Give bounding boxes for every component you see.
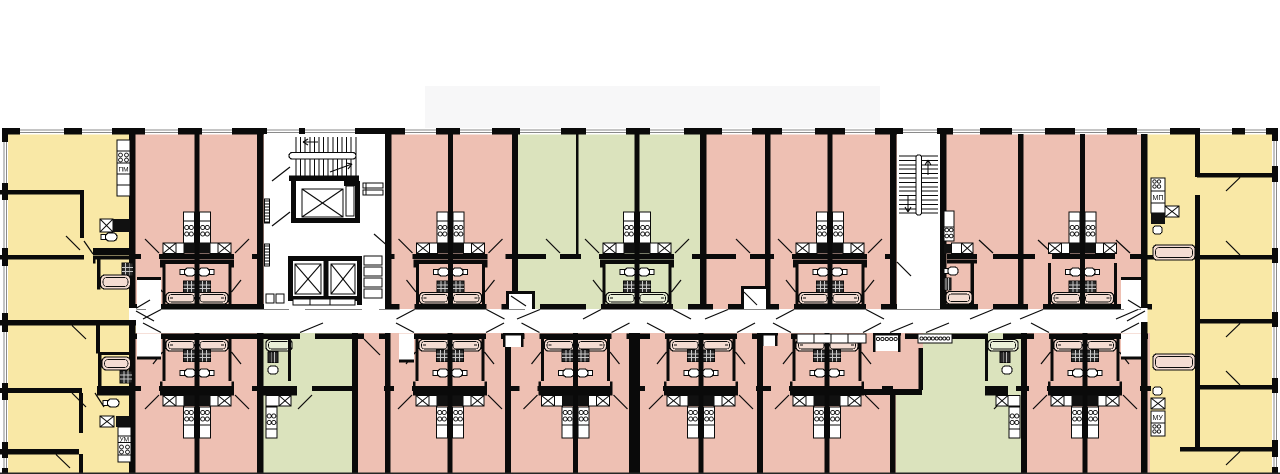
- svg-text:УМ: УМ: [120, 437, 130, 444]
- svg-text:МП: МП: [1153, 195, 1164, 202]
- svg-text:МУ: МУ: [1153, 415, 1164, 422]
- svg-text:ПМ: ПМ: [119, 167, 129, 174]
